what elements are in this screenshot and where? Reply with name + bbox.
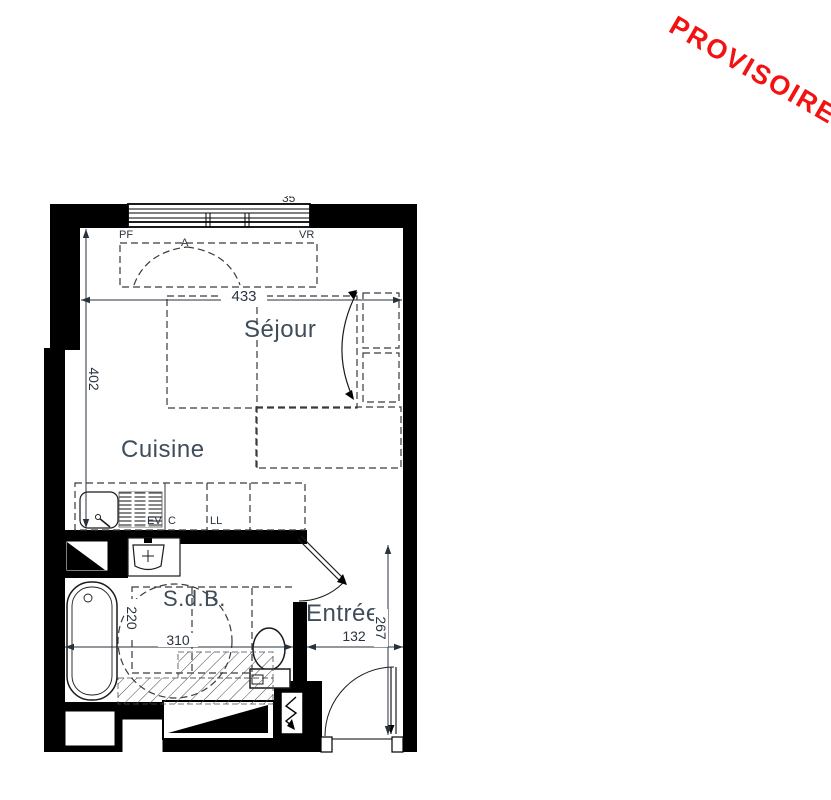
wall-wc-east [293,602,307,690]
cabinet-lower [363,353,399,402]
room-label-sdb: S.d.B. [163,588,226,610]
window-swing-zone [120,243,317,287]
wall-left-upper [50,204,80,350]
floor-plan-drawing [0,0,831,800]
room-label-entree: Entrée [306,602,380,626]
window-swing-arc-left [134,247,187,285]
door-jamb-left [321,737,332,752]
tag-vr: VR [299,230,314,241]
dimension-35-clipped: 35 [282,196,310,206]
entrance-door [325,667,396,736]
wall-opening [122,719,163,752]
door-swing-arc [325,667,394,736]
hatched-area [118,652,273,704]
wall-top-right [310,204,417,228]
faucet-icon [144,538,152,543]
window-bay [128,204,310,227]
tag-pf: PF [119,230,133,241]
dimension-132: 132 [335,629,373,643]
tag-a: A [181,238,188,249]
floor-plan: PROVISOIRE Séjour Cuisine S.d.B. Entrée … [0,0,831,800]
room-label-sejour: Séjour [244,318,316,342]
dimension-310: 310 [158,633,198,647]
bathroom-door [298,536,347,601]
tag-ev: EV [147,516,162,527]
swing-arrow-icon [345,390,354,400]
tag-ll: LL [210,516,222,527]
door-jamb-right [392,737,403,752]
washbasin [128,538,180,576]
fold-bed-swing [342,290,357,400]
sofa-outline [256,407,401,468]
wall-niche [65,711,115,746]
bathtub [67,582,117,700]
dimension-220: 220 [125,599,139,637]
dimension-433: 433 [221,289,267,304]
dimension-267: 267 [374,609,388,647]
window-swing-arc-right [187,247,240,285]
door-swing-arc [299,583,343,601]
wall-right [403,204,417,752]
room-label-cuisine: Cuisine [121,438,205,462]
tag-c: C [168,516,176,527]
dimension-402: 402 [87,360,101,398]
bed-outline [167,296,357,408]
